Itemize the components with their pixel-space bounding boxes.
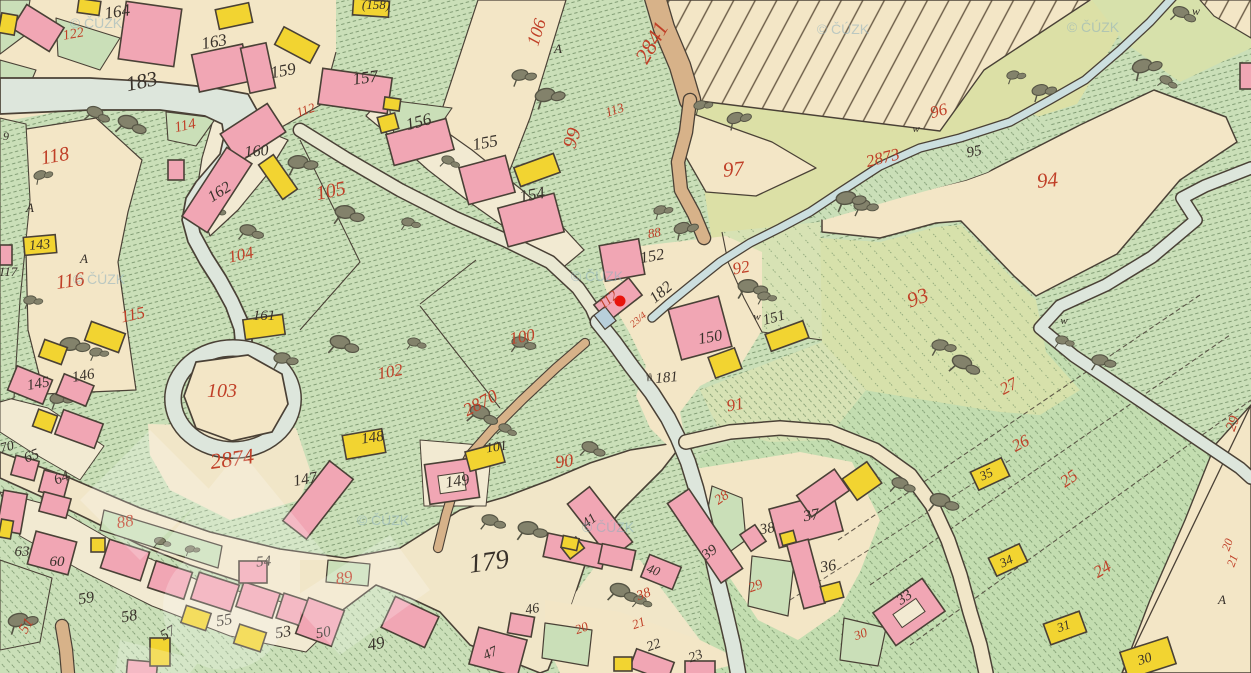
- svg-text:179: 179: [467, 543, 512, 578]
- svg-text:101: 101: [485, 439, 508, 457]
- svg-text:© ČÚZK: © ČÚZK: [817, 21, 870, 37]
- svg-text:© ČÚZK: © ČÚZK: [1067, 19, 1120, 35]
- svg-text:w: w: [753, 311, 761, 323]
- svg-text:161: 161: [253, 308, 276, 324]
- svg-text:9: 9: [3, 129, 9, 143]
- svg-text:A: A: [553, 41, 562, 56]
- svg-text:59: 59: [77, 589, 96, 609]
- svg-text:91: 91: [725, 394, 745, 416]
- svg-text:36: 36: [818, 557, 838, 577]
- svg-text:143: 143: [29, 237, 51, 254]
- svg-text:46: 46: [524, 601, 540, 618]
- svg-text:A: A: [79, 251, 88, 266]
- svg-text:97: 97: [722, 156, 747, 182]
- svg-text:A: A: [25, 200, 34, 215]
- svg-text:© ČÚZK: © ČÚZK: [571, 268, 624, 284]
- svg-text:160: 160: [244, 142, 269, 161]
- svg-text:94: 94: [1036, 167, 1060, 193]
- svg-text:157: 157: [351, 66, 380, 89]
- svg-text:© ČÚZK: © ČÚZK: [70, 15, 123, 31]
- svg-text:© ČÚZK: © ČÚZK: [73, 271, 126, 287]
- svg-text:148: 148: [360, 428, 385, 447]
- svg-text:149: 149: [444, 471, 470, 491]
- svg-text:103: 103: [207, 380, 237, 402]
- svg-text:w: w: [1192, 4, 1200, 18]
- svg-text:(158): (158): [362, 0, 390, 12]
- svg-text:90: 90: [554, 450, 575, 472]
- svg-text:63: 63: [15, 544, 30, 560]
- svg-text:© ČÚZK: © ČÚZK: [582, 519, 635, 535]
- svg-text:38: 38: [758, 520, 777, 539]
- svg-text:181: 181: [655, 369, 679, 387]
- svg-text:A: A: [1217, 592, 1226, 607]
- svg-text:w: w: [1060, 315, 1068, 327]
- svg-text:58: 58: [120, 607, 139, 627]
- svg-text:© ČÚZK: © ČÚZK: [357, 512, 410, 528]
- svg-text:117: 117: [0, 264, 18, 279]
- svg-text:w: w: [912, 123, 920, 135]
- svg-text:60: 60: [50, 554, 66, 570]
